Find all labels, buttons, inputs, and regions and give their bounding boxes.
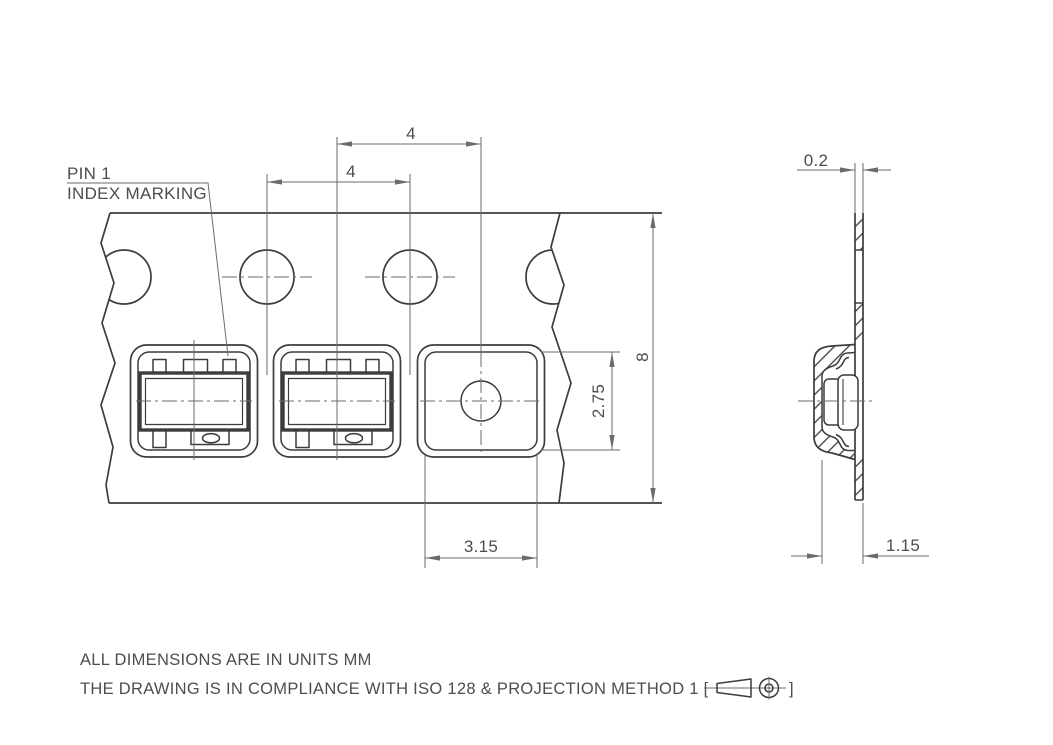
tape-side-section-view	[798, 163, 876, 500]
dim-pocket-length-value: 3.15	[464, 537, 498, 556]
components	[140, 360, 391, 448]
pin1-leader-line	[67, 183, 228, 356]
left-break-line	[101, 213, 115, 503]
notes: ALL DIMENSIONS ARE IN UNITS MM THE DRAWI…	[80, 651, 794, 700]
drawing-canvas: 4 4 8 2.75 3.15 PIN 1 INDEX MARKING	[0, 0, 1053, 745]
dim-pocket-pitch-value: 4	[406, 124, 416, 143]
dimension-tape-thickness: 0.2	[797, 151, 891, 173]
section-hatch-mid	[855, 303, 863, 345]
component-side-profile	[824, 375, 858, 430]
section-hatch-bottom	[855, 459, 863, 500]
note-units: ALL DIMENSIONS ARE IN UNITS MM	[80, 651, 372, 669]
dim-tape-width-value: 8	[633, 352, 652, 362]
pin1-label-line2: INDEX MARKING	[67, 184, 207, 203]
dimension-pocket-length: 3.15	[425, 453, 537, 568]
pin1-label-line1: PIN 1	[67, 164, 111, 183]
dim-pocket-width-value: 2.75	[589, 384, 608, 418]
dimension-pocket-pitch: 4	[337, 124, 481, 147]
dimension-tape-width: 8	[633, 213, 656, 503]
carrier-tape-technical-drawing: 4 4 8 2.75 3.15 PIN 1 INDEX MARKING	[0, 0, 1053, 745]
dimension-pocket-width: 2.75	[541, 352, 620, 450]
dimension-sprocket-pitch: 4	[267, 162, 410, 185]
first-angle-projection-icon	[704, 677, 786, 700]
right-break-line	[551, 213, 571, 503]
note-compliance: THE DRAWING IS IN COMPLIANCE WITH ISO 12…	[80, 680, 709, 698]
dim-sprocket-pitch-value: 4	[346, 162, 356, 181]
pin1-index-label: PIN 1 INDEX MARKING	[67, 164, 228, 356]
note-compliance-close-bracket: ]	[789, 680, 794, 698]
dim-pocket-depth-value: 1.15	[886, 536, 920, 555]
section-hatch-top	[855, 213, 863, 250]
sprocket-hole-partial-right	[526, 250, 580, 304]
sprocket-holes	[97, 250, 580, 304]
dim-tape-thickness-value: 0.2	[804, 151, 829, 170]
